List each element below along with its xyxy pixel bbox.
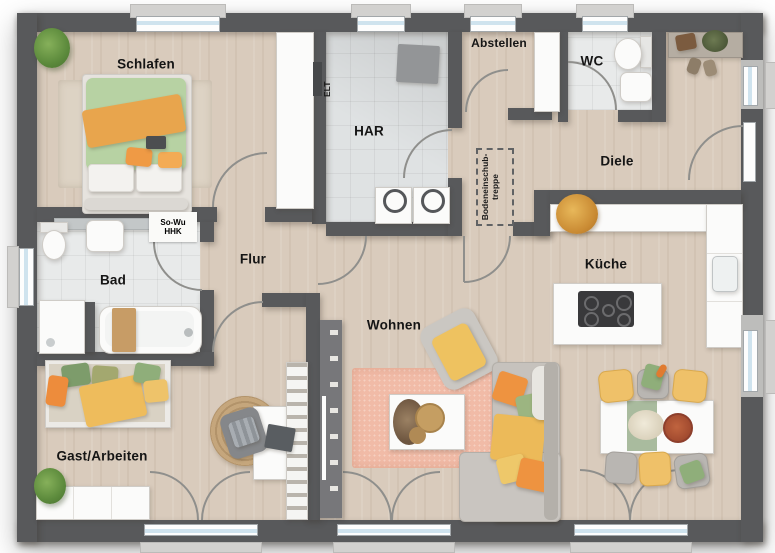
wall-segment [448,32,462,128]
wall-segment [265,207,312,222]
wall-segment [200,222,214,242]
window-sill [765,62,775,109]
bag [675,32,697,51]
room-label-gast: Gast/Arbeiten [56,449,147,464]
burner [584,312,599,327]
wall-segment [306,293,320,520]
bath-caddy [112,308,136,352]
bed-pillow [136,164,182,192]
window [357,16,405,32]
plant-icon [702,30,728,52]
plant-icon [34,28,70,68]
machine-door [421,189,445,213]
dining-chair-yellow [597,368,634,403]
entry-door-leaf [743,122,756,182]
window [743,66,758,106]
flower-bouquet [628,410,664,440]
attic-stairs-label: Bodeneinschub- treppe [480,152,500,222]
bath-faucet [184,328,193,337]
toilet [614,38,642,70]
room-label-diele: Diele [600,154,633,169]
accent-pillow [143,379,169,403]
tv [322,396,326,480]
dining-chair-yellow [638,451,672,487]
window-sill [765,320,775,394]
electrical-panel [313,62,322,96]
plant-icon [34,468,66,504]
attic-stairs-box: Bodeneinschub- treppe [476,148,514,226]
wall-segment [312,32,326,224]
bath-sink [86,220,124,252]
elt-label: ELT [322,82,332,97]
hall-cabinet [534,32,560,112]
accent-pillow [158,152,182,168]
window [19,248,34,306]
dining-chair-yellow [671,368,708,403]
french-door-threshold [337,524,451,536]
heating-unit [396,44,440,84]
floorplan: Schlafen HAR Abstellen WC Diele Bad Flur… [0,0,775,553]
sofa-backrest [544,362,558,520]
attic-stairs-line2: treppe [490,174,500,200]
wardrobe [276,32,314,209]
bidet [620,72,652,102]
toilet [42,230,66,260]
window [470,16,516,32]
french-door-threshold [144,524,258,536]
wall-segment [652,32,666,122]
wall-segment [326,222,452,236]
door-sill [570,542,692,553]
machine-door [383,189,407,213]
media-shelf-items [330,330,338,510]
room-label-bad: Bad [100,273,126,288]
burner [616,295,632,311]
window [743,330,758,392]
room-label-wc: WC [581,54,604,69]
french-door-threshold [574,524,688,536]
shower [39,300,85,354]
fruit-bowl [556,194,598,234]
wall-segment [262,293,306,307]
heating-label-box: So-Wu HHK [149,212,197,242]
bed-bench [84,198,188,210]
room-label-abstellen: Abstellen [471,36,527,50]
heating-label-line2: HHK [164,227,181,236]
window [136,16,220,32]
decor-tray [409,427,426,444]
shower-drain [46,338,55,347]
wall-segment [448,178,462,236]
accent-pillow [125,147,153,168]
attic-stairs-line1: Bodeneinschub- [480,154,490,221]
burner [602,304,615,317]
room-label-wohnen: Wohnen [367,318,421,333]
window [582,16,628,32]
food-bowl [663,413,693,443]
burner [584,296,599,311]
dining-chair-gray [604,451,638,485]
window-sill [7,246,19,308]
room-label-flur: Flur [240,252,266,267]
heating-label-line1: So-Wu [160,218,185,227]
door-sill [333,542,455,553]
room-label-har: HAR [354,124,384,139]
burner [617,313,631,327]
wall-segment [534,190,550,236]
bed-pillow [88,164,134,192]
room-label-kueche: Küche [585,257,627,272]
kitchen-sink [712,256,738,292]
accent-pillow [45,375,69,407]
door-sill [140,542,262,553]
wall-segment [618,110,652,122]
laptop [264,424,296,452]
tablet [146,136,166,149]
room-label-schlafen: Schlafen [117,57,175,72]
